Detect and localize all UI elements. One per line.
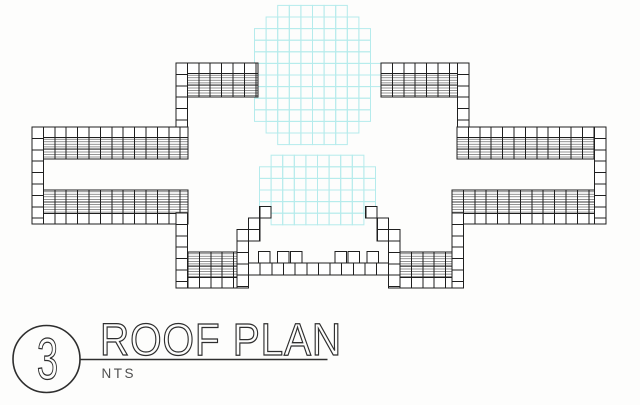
parapet-square-column bbox=[176, 63, 187, 127]
parapet-square-column bbox=[32, 127, 43, 224]
tree-canopy bbox=[260, 155, 376, 225]
parapet-square-column bbox=[237, 241, 248, 288]
roof-plan-drawing bbox=[32, 5, 606, 288]
roof-tile-band bbox=[176, 63, 258, 97]
drawing-sheet: 3 ROOF PLAN NTS bbox=[0, 0, 640, 405]
roof-tile-band bbox=[32, 190, 188, 224]
parapet-square-column bbox=[452, 213, 463, 288]
roof-tile-band bbox=[188, 252, 237, 288]
title-block: 3 ROOF PLAN NTS bbox=[13, 315, 342, 392]
parapet-square-column bbox=[595, 127, 606, 224]
drawing-scale: NTS bbox=[102, 366, 137, 381]
roof-tile-band bbox=[452, 190, 606, 224]
roof-tile-band bbox=[457, 127, 606, 159]
parapet-square-column bbox=[458, 63, 469, 127]
roof-tile-band bbox=[400, 252, 452, 288]
detail-squares bbox=[237, 207, 400, 263]
parapet-square-column bbox=[389, 241, 400, 288]
tree-canopy bbox=[243, 5, 382, 144]
roof-tile-band bbox=[32, 127, 188, 159]
square-row bbox=[249, 263, 389, 275]
detail-number: 3 bbox=[37, 328, 58, 392]
drawing-title: ROOF PLAN bbox=[100, 315, 342, 365]
roof-tile-band bbox=[381, 63, 469, 97]
parapet-square-column bbox=[176, 213, 187, 288]
roof-plan-canvas: 3 ROOF PLAN NTS bbox=[0, 0, 640, 405]
